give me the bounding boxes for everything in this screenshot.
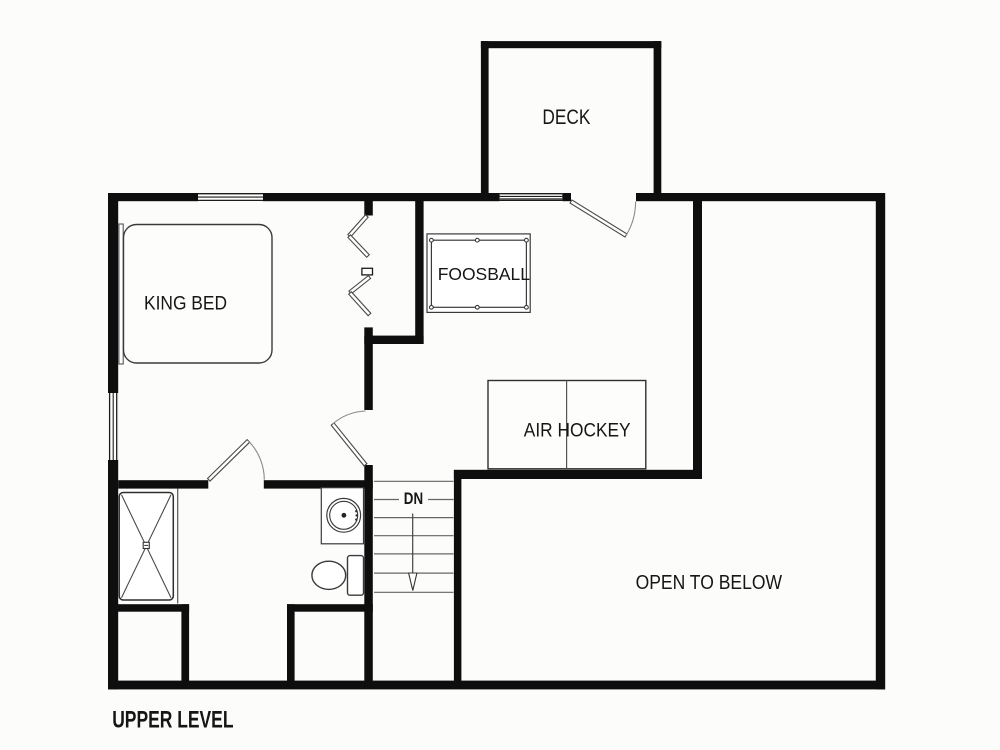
svg-text:DN: DN xyxy=(404,490,423,508)
svg-text:UPPER LEVEL: UPPER LEVEL xyxy=(112,707,233,734)
svg-text:DECK: DECK xyxy=(542,106,590,129)
svg-text:KING BED: KING BED xyxy=(144,293,227,315)
svg-text:AIR HOCKEY: AIR HOCKEY xyxy=(524,420,631,442)
svg-text:FOOSBALL: FOOSBALL xyxy=(438,264,531,284)
svg-text:OPEN TO BELOW: OPEN TO BELOW xyxy=(636,572,782,594)
